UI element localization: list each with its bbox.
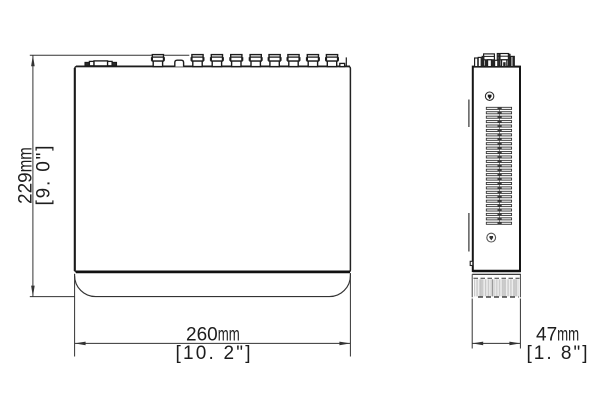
svg-text:[10. 2"]: [10. 2"]: [176, 343, 251, 364]
svg-text:[1. 8"]: [1. 8"]: [527, 343, 588, 364]
svg-text:[9. 0"]: [9. 0"]: [33, 146, 54, 206]
